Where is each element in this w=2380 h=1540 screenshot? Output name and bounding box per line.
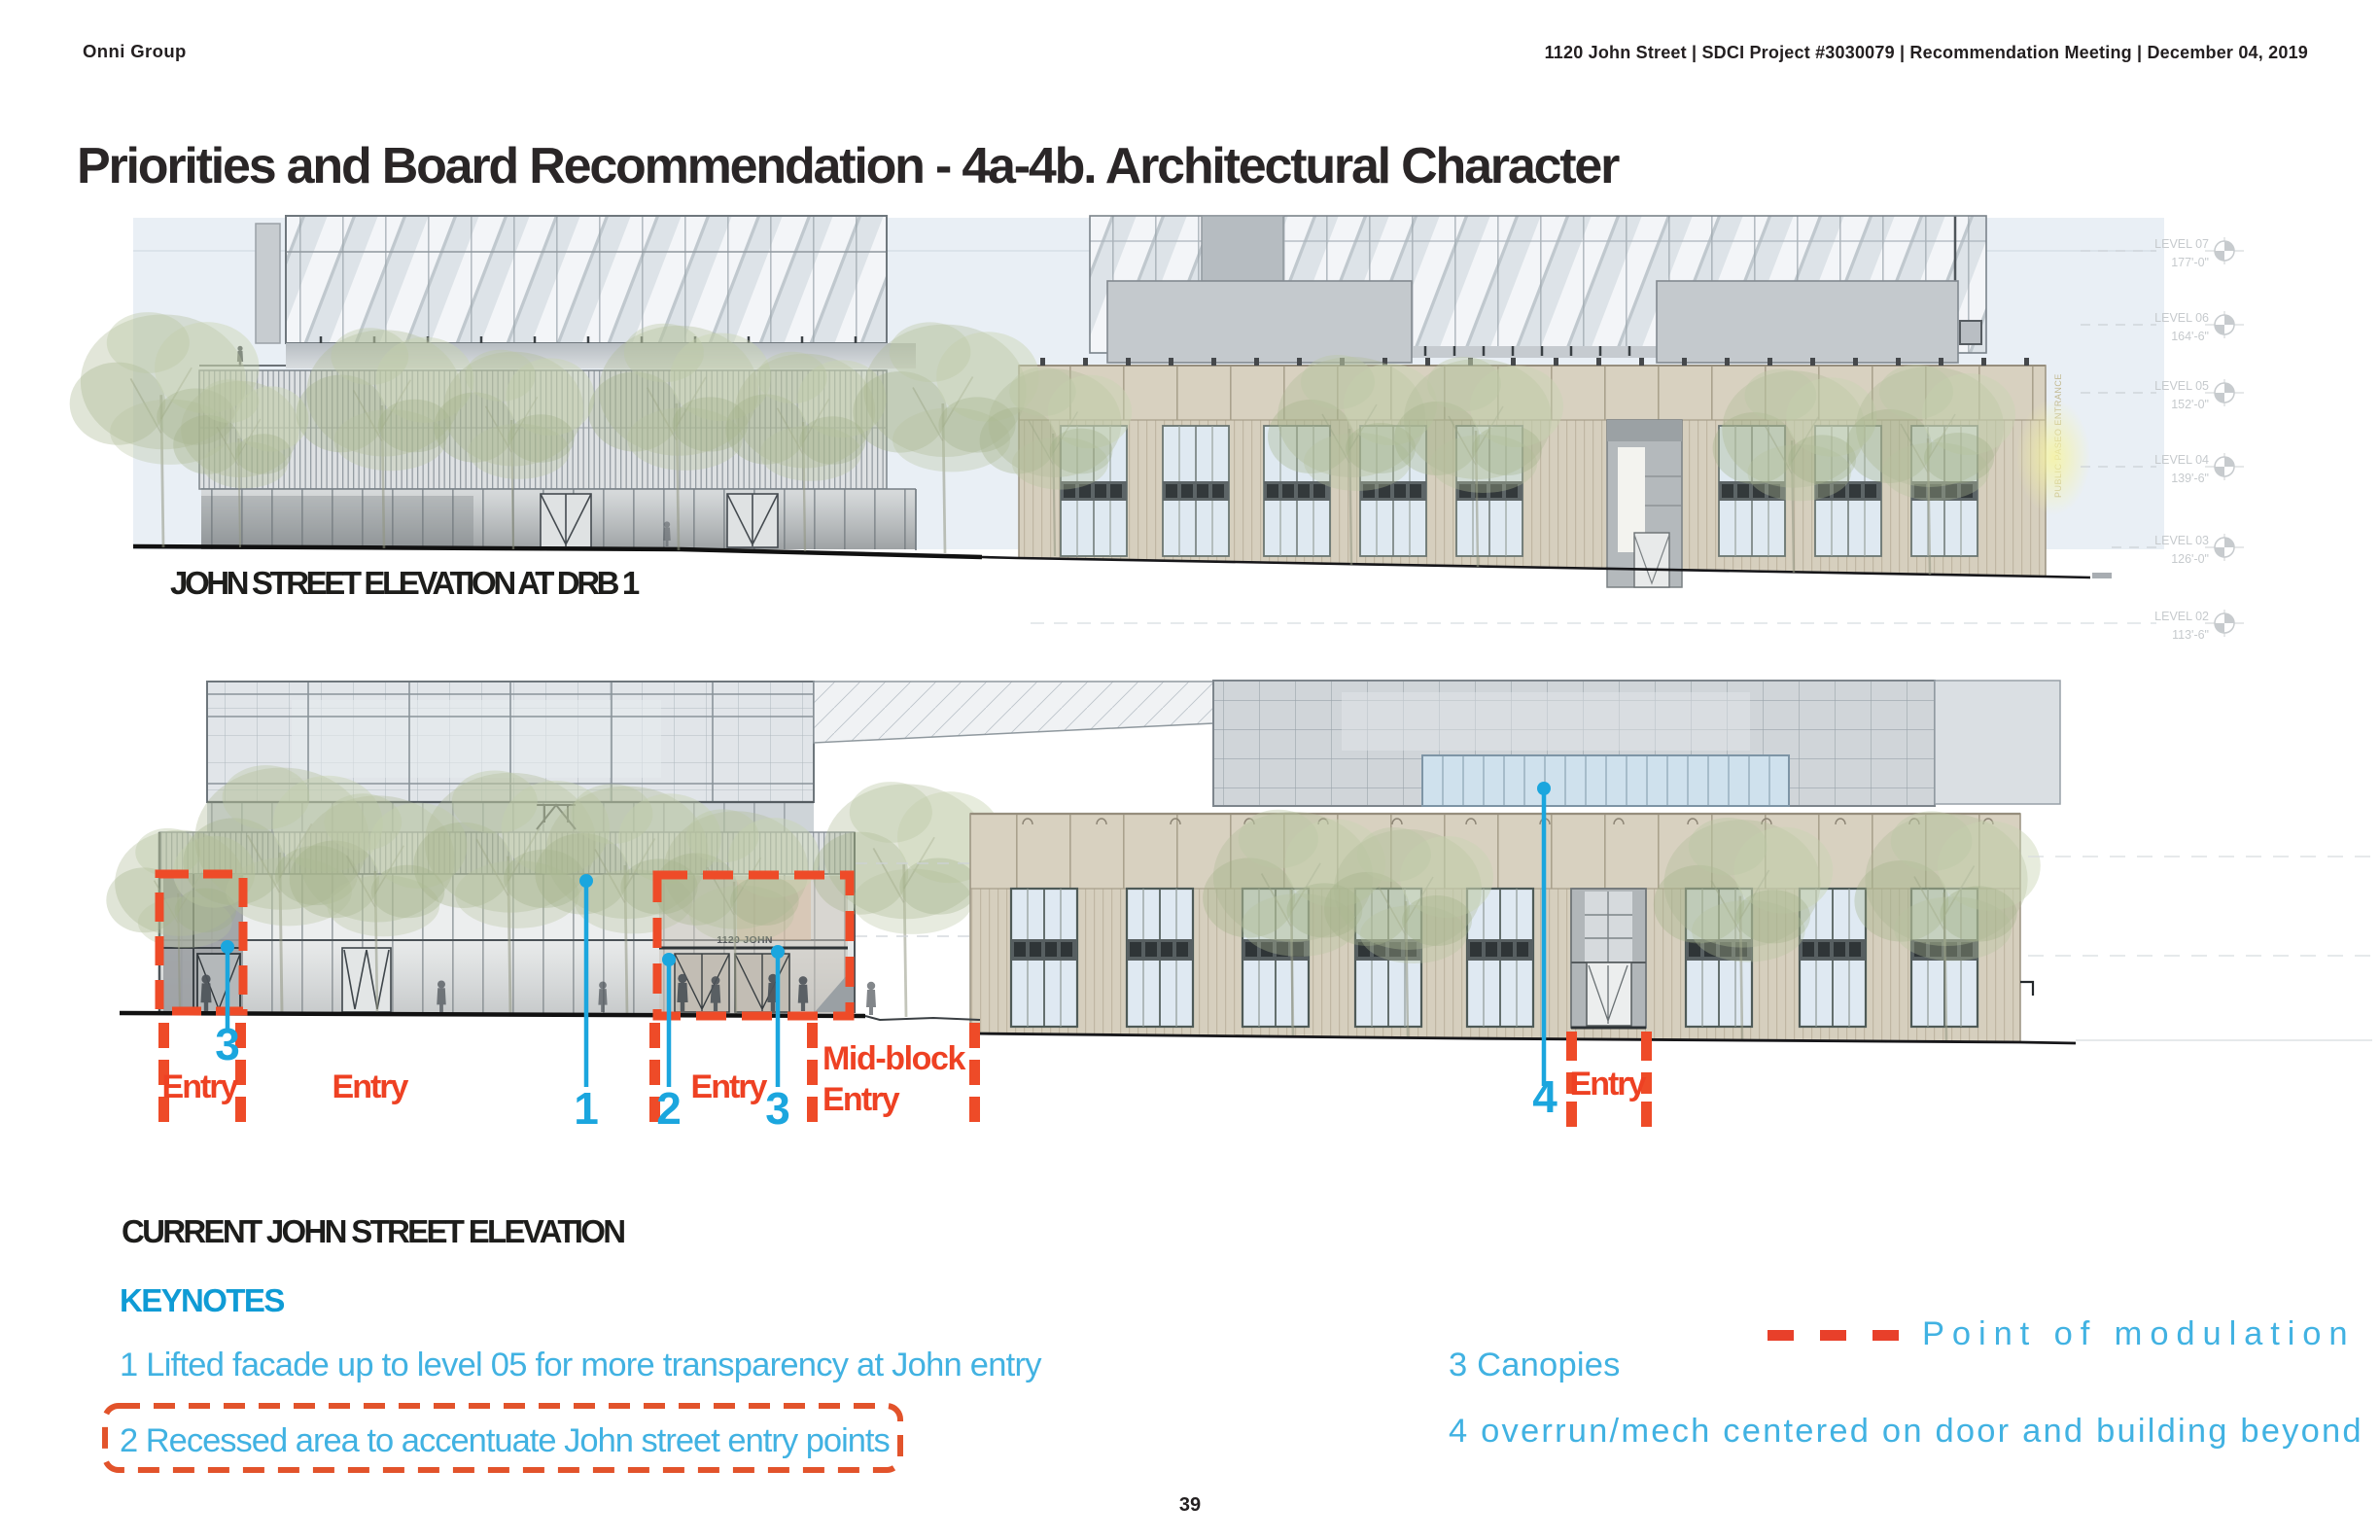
svg-text:LEVEL 07: LEVEL 07 bbox=[2154, 237, 2209, 251]
svg-text:2 Recessed area to accentuate: 2 Recessed area to accentuate John stree… bbox=[120, 1422, 890, 1459]
svg-text:Mid-block: Mid-block bbox=[822, 1040, 966, 1077]
svg-text:4 overrun/mech centered on doo: 4 overrun/mech centered on door and buil… bbox=[1449, 1413, 2363, 1450]
svg-text:177'-0": 177'-0" bbox=[2171, 256, 2209, 269]
svg-text:1120 John Street | SDCI Proje: 1120 John Street | SDCI Project #3030079… bbox=[1545, 43, 2308, 62]
svg-text:Onni Group: Onni Group bbox=[83, 41, 187, 61]
svg-text:LEVEL 05: LEVEL 05 bbox=[2154, 379, 2209, 393]
svg-text:Entry: Entry bbox=[162, 1068, 239, 1105]
svg-text:Entry: Entry bbox=[1570, 1066, 1647, 1102]
svg-text:LEVEL 02: LEVEL 02 bbox=[2154, 610, 2209, 623]
svg-text:1: 1 bbox=[574, 1083, 599, 1134]
svg-text:126'-0": 126'-0" bbox=[2171, 552, 2209, 566]
svg-text:113'-6": 113'-6" bbox=[2172, 628, 2209, 642]
svg-text:CURRENT JOHN STREET ELEVATION: CURRENT JOHN STREET ELEVATION bbox=[122, 1213, 624, 1249]
svg-text:Point of modulation: Point of modulation bbox=[1922, 1315, 2355, 1352]
svg-text:Entry: Entry bbox=[822, 1081, 900, 1118]
svg-text:JOHN STREET ELEVATION AT DRB 1: JOHN STREET ELEVATION AT DRB 1 bbox=[170, 565, 640, 601]
svg-text:Priorities and Board Recommend: Priorities and Board Recommendation - 4a… bbox=[77, 138, 1620, 194]
svg-text:3 Canopies: 3 Canopies bbox=[1449, 1347, 1621, 1383]
svg-text:Entry: Entry bbox=[691, 1068, 768, 1105]
svg-text:2: 2 bbox=[656, 1083, 682, 1134]
svg-text:152'-0": 152'-0" bbox=[2171, 398, 2209, 411]
svg-text:4: 4 bbox=[1532, 1071, 1557, 1122]
svg-text:LEVEL 04: LEVEL 04 bbox=[2154, 453, 2209, 467]
svg-text:LEVEL 06: LEVEL 06 bbox=[2154, 311, 2209, 325]
svg-text:3: 3 bbox=[765, 1083, 790, 1134]
svg-text:Entry: Entry bbox=[332, 1068, 409, 1105]
svg-text:139'-6": 139'-6" bbox=[2171, 472, 2209, 485]
svg-text:1 Lifted facade up to level 0: 1 Lifted facade up to level 05 for more … bbox=[120, 1347, 1042, 1383]
svg-text:3: 3 bbox=[215, 1019, 240, 1069]
svg-text:39: 39 bbox=[1179, 1494, 1201, 1516]
svg-text:LEVEL 03: LEVEL 03 bbox=[2154, 534, 2209, 547]
svg-text:KEYNOTES: KEYNOTES bbox=[120, 1282, 284, 1318]
svg-text:164'-6": 164'-6" bbox=[2171, 330, 2209, 343]
